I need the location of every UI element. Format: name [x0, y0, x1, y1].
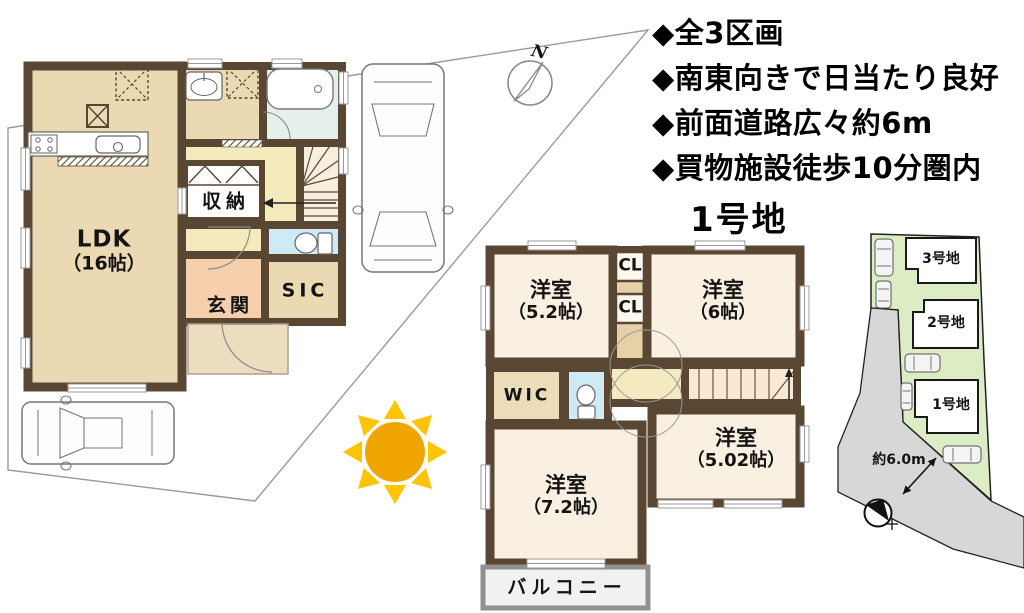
- room-5-2-label: 洋室 （5.2帖）: [508, 279, 594, 323]
- feature-item: ◆南東向きで日当たり良好: [652, 55, 999, 97]
- threshold: [222, 140, 262, 147]
- lot1-label: 1号地: [932, 398, 970, 414]
- lot2-label: 2号地: [927, 316, 965, 332]
- toilet-icon: [577, 385, 595, 419]
- room-6-label: 洋室 （6帖）: [690, 279, 757, 323]
- ldk-size: （16帖）: [62, 253, 145, 274]
- closet1-label: CL: [618, 256, 641, 275]
- hallway-2f: [608, 365, 685, 403]
- room-name: 洋室: [687, 427, 785, 451]
- lot3-label: 3号地: [922, 252, 960, 268]
- room-size: （5.02帖）: [687, 451, 785, 471]
- car-icon: [353, 64, 453, 272]
- feature-item: ◆買物施設徒歩10分圏内: [652, 145, 982, 187]
- car-icon: [876, 281, 891, 308]
- stairs-1f: [300, 143, 342, 225]
- floor1-plan: [21, 59, 348, 392]
- closet2-label: CL: [618, 298, 641, 317]
- car-icon: [901, 383, 912, 410]
- washbasin: [186, 72, 222, 100]
- sic-label: SIC: [282, 280, 329, 301]
- storage-label: 収納: [202, 191, 250, 212]
- road-width-label: 約6.0m: [872, 453, 925, 469]
- north-compass-icon: [508, 61, 552, 105]
- room-7-2-label: 洋室 （7.2帖）: [523, 474, 609, 518]
- room-size: （7.2帖）: [523, 498, 609, 518]
- balcony-label: バルコニー: [507, 577, 627, 598]
- entrance-label: 玄関: [207, 295, 253, 316]
- car-icon: [905, 354, 940, 372]
- room-5-02-label: 洋室 （5.02帖）: [687, 427, 785, 471]
- feature-item: ◆前面道路広々約6m: [652, 100, 933, 142]
- car-icon: [875, 239, 893, 276]
- room-size: （6帖）: [690, 303, 757, 323]
- sun-icon: [343, 400, 447, 504]
- car-icon: [22, 396, 174, 470]
- ldk-label: LDK （16帖）: [62, 227, 145, 274]
- room-name: 洋室: [523, 474, 609, 498]
- site-plan: [838, 234, 1024, 568]
- entrance-porch: [188, 324, 288, 374]
- flyer-canvas: ◆全3区画 ◆南東向きで日当たり良好 ◆前面道路広々約6m ◆買物施設徒歩10分…: [0, 0, 1024, 613]
- feature-item: ◆全3区画: [652, 10, 784, 52]
- room-name: 洋室: [690, 279, 757, 303]
- lot-title: 1号地: [690, 192, 788, 241]
- toilet-icon: [295, 233, 332, 254]
- car-icon: [943, 446, 981, 463]
- wic-label: WIC: [504, 386, 551, 405]
- room-size: （5.2帖）: [508, 303, 594, 323]
- hallway-lower: [182, 225, 265, 255]
- room-name: 洋室: [508, 279, 594, 303]
- ldk-name: LDK: [62, 227, 145, 253]
